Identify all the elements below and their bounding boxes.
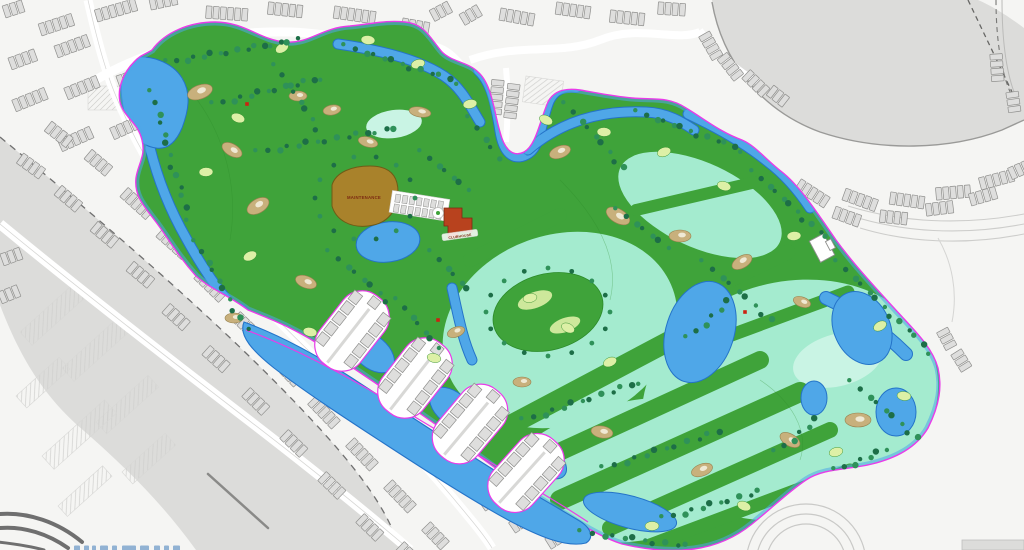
tree: [612, 462, 617, 467]
tree: [771, 448, 775, 452]
tree: [202, 54, 207, 59]
tree: [853, 276, 859, 282]
tree: [858, 457, 862, 461]
tree: [254, 88, 260, 94]
tree: [297, 143, 302, 148]
tree: [474, 125, 479, 130]
tree: [152, 100, 157, 105]
tree: [883, 305, 887, 309]
tree: [223, 51, 228, 56]
tree: [180, 185, 184, 189]
tree: [336, 256, 341, 261]
tree: [291, 89, 295, 93]
tree: [446, 266, 452, 272]
tree: [296, 36, 300, 40]
tree: [191, 238, 195, 242]
tree: [299, 100, 304, 105]
tree: [436, 72, 441, 77]
tree: [807, 425, 812, 430]
tree: [424, 330, 429, 335]
tree: [362, 278, 367, 283]
tree: [351, 155, 356, 160]
tree: [811, 415, 817, 421]
tree: [738, 150, 742, 154]
tree: [769, 316, 775, 322]
tree: [217, 278, 222, 283]
tree: [710, 267, 715, 272]
tree: [900, 422, 904, 426]
tree: [313, 196, 318, 201]
tree: [546, 354, 551, 359]
tree: [427, 156, 432, 161]
tree: [497, 156, 502, 161]
tree: [719, 500, 723, 504]
tree: [550, 407, 554, 411]
tree: [569, 350, 574, 355]
tree: [437, 346, 441, 350]
tree: [671, 513, 676, 518]
tree: [580, 119, 586, 125]
tree: [737, 289, 742, 294]
tree: [437, 257, 442, 262]
tree: [613, 206, 617, 210]
tree: [296, 83, 300, 87]
tree: [437, 163, 443, 169]
tree: [238, 94, 242, 98]
tree: [908, 328, 912, 332]
tree: [185, 58, 191, 64]
tree: [372, 131, 376, 135]
tree: [158, 120, 162, 124]
tree: [219, 285, 225, 291]
housing-strip: [1006, 91, 1021, 113]
tree: [886, 314, 891, 319]
tree: [169, 153, 173, 157]
tree: [911, 333, 916, 338]
tree: [858, 386, 863, 391]
tree: [599, 464, 603, 468]
tree: [852, 462, 858, 468]
tree: [465, 114, 469, 118]
tree: [662, 539, 668, 545]
tree: [597, 139, 603, 145]
tree: [721, 139, 726, 144]
tree: [831, 466, 835, 470]
tree: [341, 42, 345, 46]
tree: [561, 100, 565, 104]
tree: [277, 147, 283, 153]
tree: [649, 541, 654, 546]
tree: [732, 144, 738, 150]
tree: [413, 196, 418, 201]
tree: [759, 176, 764, 181]
tree: [671, 444, 676, 449]
tree: [640, 226, 644, 230]
tree: [228, 297, 232, 301]
tree: [265, 148, 270, 153]
tree: [785, 200, 791, 206]
tree: [371, 52, 375, 56]
tree: [693, 133, 698, 138]
tree: [569, 269, 574, 274]
tree: [567, 399, 573, 405]
tree: [672, 123, 677, 128]
tree: [842, 464, 847, 469]
tree: [488, 293, 493, 298]
tree: [207, 260, 213, 266]
tree: [589, 278, 594, 283]
tree: [394, 228, 399, 233]
tree: [676, 123, 682, 129]
roundabout-island: [436, 211, 440, 215]
tree: [833, 258, 837, 262]
tree: [237, 314, 243, 320]
tree: [873, 448, 879, 454]
tree: [234, 46, 240, 52]
tree: [162, 140, 168, 146]
tree: [577, 528, 581, 532]
tree: [288, 82, 294, 88]
tree: [522, 350, 527, 355]
tree: [884, 408, 889, 413]
tree: [773, 189, 777, 193]
tree: [431, 72, 435, 76]
tree: [325, 248, 329, 252]
tree: [178, 193, 183, 198]
tree: [302, 138, 308, 144]
tree: [868, 455, 873, 460]
tree: [629, 534, 635, 540]
tree: [384, 126, 389, 131]
tree: [417, 66, 423, 72]
tree: [283, 39, 289, 45]
tree: [232, 98, 238, 104]
tree: [603, 326, 608, 331]
tree: [318, 177, 323, 182]
tree: [585, 125, 589, 129]
tree: [717, 139, 721, 143]
tree: [390, 126, 396, 132]
tree: [378, 291, 382, 295]
tree: [797, 430, 801, 434]
tree: [693, 328, 698, 333]
tree: [643, 538, 647, 542]
tree: [502, 278, 507, 283]
tree: [147, 88, 151, 92]
tree: [723, 297, 729, 303]
tree: [586, 397, 591, 402]
tree: [251, 43, 256, 48]
tree: [612, 390, 616, 394]
tree: [651, 447, 657, 453]
tree: [408, 177, 413, 182]
tree: [717, 429, 723, 435]
tree: [704, 133, 710, 139]
tree: [531, 414, 536, 419]
tree: [683, 334, 687, 338]
tree: [268, 44, 272, 48]
tree: [603, 293, 608, 298]
tree: [758, 312, 763, 317]
tree: [484, 137, 490, 143]
tree: [754, 488, 759, 493]
tree: [374, 237, 379, 242]
tree: [562, 406, 567, 411]
tree: [262, 43, 268, 49]
tree: [426, 335, 432, 341]
tree: [346, 264, 352, 270]
maintenance-area: MAINTENANCE: [332, 166, 398, 226]
tree: [659, 514, 663, 518]
tree: [754, 303, 758, 307]
tree: [488, 145, 492, 149]
tree: [316, 140, 320, 144]
tree: [163, 132, 168, 137]
tree: [701, 506, 706, 511]
tree: [624, 460, 630, 466]
tree: [709, 313, 713, 317]
tree: [253, 148, 257, 152]
tree: [488, 326, 493, 331]
tree: [874, 400, 878, 404]
tree: [621, 164, 627, 170]
tree: [655, 117, 661, 123]
tree: [408, 214, 413, 219]
tree: [704, 322, 710, 328]
tree: [209, 100, 213, 104]
tree: [331, 228, 336, 233]
tree: [284, 144, 288, 148]
maintenance-label: MAINTENANCE: [347, 195, 381, 200]
tree: [617, 384, 622, 389]
tree: [843, 267, 848, 272]
pond: [801, 381, 827, 415]
tree: [888, 412, 894, 418]
tree: [415, 321, 419, 325]
tree: [318, 214, 323, 219]
tree: [220, 99, 225, 104]
tree: [706, 500, 712, 506]
tree: [442, 168, 446, 172]
tree: [451, 272, 455, 276]
tree: [689, 507, 693, 511]
tree: [374, 155, 379, 160]
tree: [726, 281, 730, 285]
tree: [247, 48, 251, 52]
tree: [682, 511, 688, 517]
tree: [279, 72, 284, 77]
tree: [689, 129, 693, 133]
tree: [417, 148, 421, 152]
tree: [460, 281, 465, 286]
tree: [594, 134, 599, 139]
tree: [206, 50, 212, 56]
housing-strip: [935, 185, 970, 200]
tree: [858, 281, 862, 285]
tree: [645, 453, 650, 458]
tree: [393, 296, 397, 300]
tree: [602, 533, 608, 539]
tree: [402, 305, 407, 310]
master-plan-canvas: MAINTENANCE CLUBHOUSE: [0, 0, 1024, 550]
tree: [272, 88, 277, 93]
tree: [904, 430, 909, 435]
tree: [799, 217, 804, 222]
tree: [667, 246, 671, 250]
tree: [633, 108, 637, 112]
tree: [210, 268, 214, 272]
tree: [219, 51, 223, 55]
tree: [868, 290, 873, 295]
tree: [623, 536, 628, 541]
tree: [546, 266, 551, 271]
putting-green: [645, 521, 659, 530]
tree: [191, 55, 195, 59]
tree: [301, 105, 307, 111]
tree: [247, 327, 251, 331]
tree: [271, 62, 275, 66]
tree: [334, 134, 340, 140]
tree: [388, 56, 394, 62]
red-site-marker: [436, 318, 440, 322]
tree: [915, 434, 921, 440]
tree: [644, 112, 649, 117]
tree: [822, 234, 827, 239]
tree: [721, 275, 727, 281]
tree: [267, 89, 271, 93]
tree: [454, 82, 458, 86]
tree: [590, 531, 595, 536]
red-site-marker: [743, 310, 747, 314]
tree: [742, 293, 748, 299]
tree: [871, 295, 877, 301]
tree: [847, 378, 851, 382]
tree: [808, 221, 814, 227]
tree: [366, 281, 372, 287]
tree: [581, 399, 585, 403]
red-site-marker: [245, 102, 249, 106]
tree: [401, 62, 405, 66]
tree: [634, 221, 640, 227]
tree: [724, 499, 729, 504]
tree: [184, 204, 190, 210]
tree: [629, 382, 635, 388]
tree: [650, 234, 655, 239]
tree: [406, 66, 411, 71]
tree: [665, 446, 669, 450]
tree: [636, 382, 640, 386]
tree: [184, 218, 188, 222]
tree: [624, 214, 629, 219]
tree: [598, 391, 604, 397]
tree: [352, 269, 356, 273]
tree: [311, 117, 315, 121]
tree: [249, 94, 254, 99]
tree: [749, 493, 753, 497]
southeast-gray-block: [962, 540, 1024, 550]
tree: [312, 77, 318, 83]
tree: [174, 58, 179, 63]
tree: [427, 248, 431, 252]
tree: [610, 533, 614, 537]
tree: [411, 315, 417, 321]
tree: [608, 310, 613, 315]
tree: [719, 307, 724, 312]
tree: [353, 130, 358, 135]
tree: [704, 431, 709, 436]
tree: [158, 112, 164, 118]
tree: [684, 438, 690, 444]
tree: [749, 168, 753, 172]
tree: [300, 78, 305, 83]
tree: [736, 493, 742, 499]
tree: [661, 118, 665, 122]
tree: [502, 341, 507, 346]
tree: [611, 159, 616, 164]
tree: [885, 448, 889, 452]
tree: [463, 285, 469, 291]
tree: [921, 341, 927, 347]
tree: [484, 310, 489, 315]
tree: [781, 443, 786, 448]
tree: [467, 188, 471, 192]
tree: [926, 352, 930, 356]
tree: [608, 150, 612, 154]
tree: [168, 165, 173, 170]
tree: [364, 51, 370, 57]
tree: [589, 341, 594, 346]
golf-master-plan-map: MAINTENANCE CLUBHOUSE: [0, 0, 1024, 550]
tree: [394, 163, 399, 168]
tree: [543, 412, 549, 418]
tree: [353, 46, 358, 51]
tree: [347, 135, 351, 139]
tree: [698, 437, 702, 441]
tree: [455, 179, 461, 185]
tree: [351, 237, 356, 242]
tree: [313, 127, 318, 132]
tree: [318, 78, 322, 82]
tree: [868, 395, 874, 401]
tree: [447, 76, 453, 82]
tree: [322, 139, 327, 144]
tree: [796, 209, 800, 213]
tree: [173, 172, 179, 178]
tree: [365, 130, 371, 136]
tree: [699, 258, 703, 262]
tree: [382, 56, 387, 61]
tree: [163, 58, 167, 62]
tree: [819, 230, 823, 234]
tree: [571, 109, 576, 114]
tree: [199, 249, 204, 254]
tree: [792, 438, 798, 444]
tree: [522, 269, 527, 274]
tree: [519, 416, 523, 420]
tree: [682, 542, 687, 547]
tree: [896, 318, 902, 324]
tree: [229, 308, 234, 313]
tree: [676, 543, 680, 547]
tree: [331, 163, 336, 168]
tree: [655, 237, 661, 243]
tree: [632, 455, 636, 459]
tree: [383, 299, 388, 304]
